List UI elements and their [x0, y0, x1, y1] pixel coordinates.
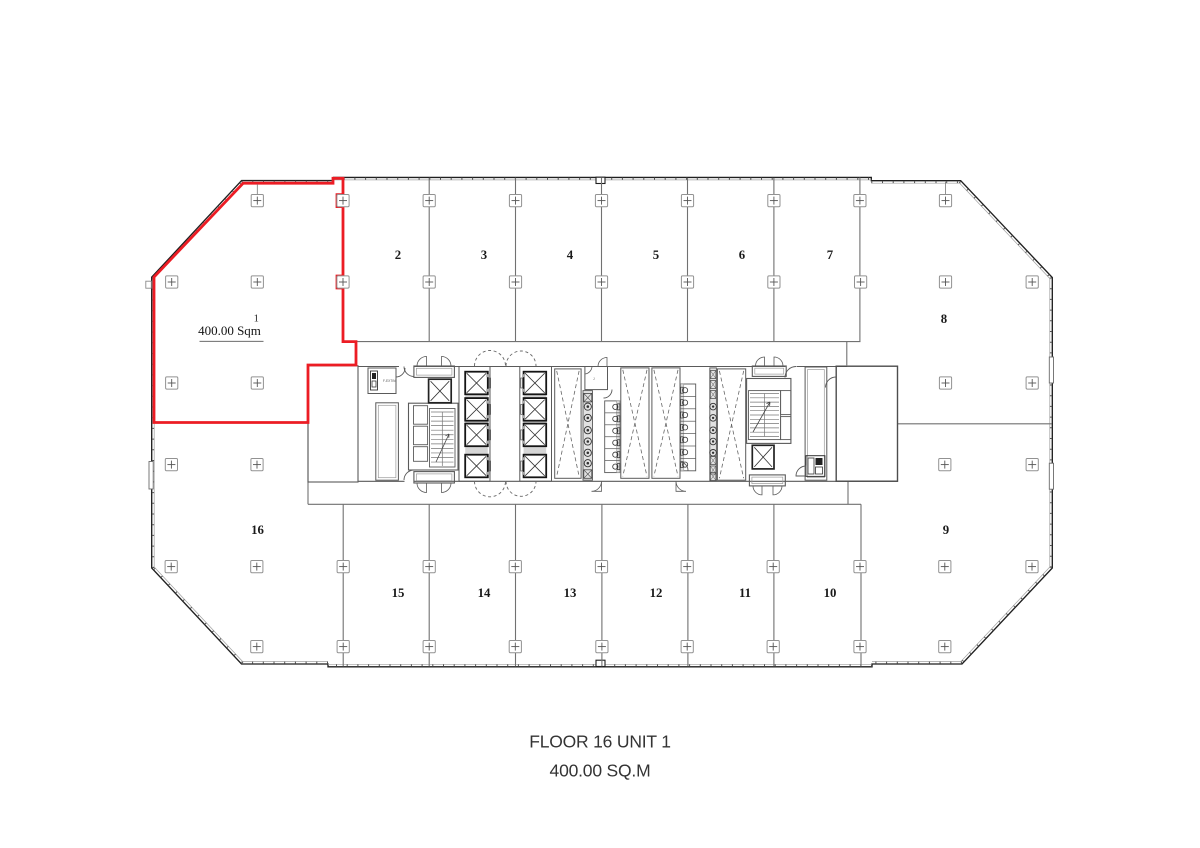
- svg-text:16: 16: [251, 523, 264, 537]
- svg-text:9: 9: [943, 523, 949, 537]
- svg-text:F-EXTIN: F-EXTIN: [383, 379, 396, 383]
- svg-text:8: 8: [941, 312, 947, 326]
- svg-text:FLOOR 16 UNIT 1: FLOOR 16 UNIT 1: [529, 732, 671, 752]
- svg-text:4: 4: [567, 248, 574, 262]
- svg-text:14: 14: [478, 586, 491, 600]
- svg-text:3: 3: [481, 248, 487, 262]
- svg-text:5: 5: [653, 248, 659, 262]
- svg-text:15: 15: [392, 586, 405, 600]
- svg-text:7: 7: [827, 248, 834, 262]
- svg-text:2: 2: [395, 248, 401, 262]
- svg-text:10: 10: [824, 586, 837, 600]
- svg-text:400.00 Sqm: 400.00 Sqm: [198, 323, 261, 338]
- svg-text:12: 12: [650, 586, 663, 600]
- svg-text:6: 6: [739, 248, 746, 262]
- svg-text:400.00 SQ.M: 400.00 SQ.M: [550, 761, 651, 781]
- svg-text:11: 11: [739, 586, 751, 600]
- svg-text:13: 13: [564, 586, 577, 600]
